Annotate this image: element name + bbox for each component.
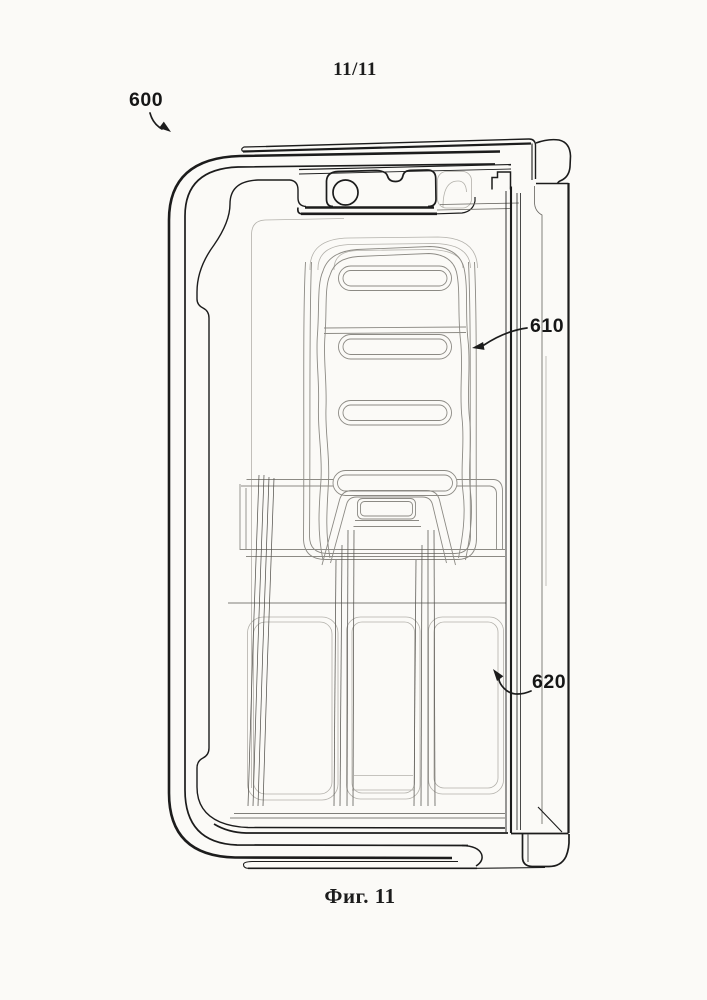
pocket-assembly <box>240 262 505 565</box>
patent-sheet: 11/11 <box>0 0 707 1000</box>
bin-compartments <box>248 617 504 800</box>
patent-line-art <box>0 0 707 1000</box>
vent-slot <box>339 401 452 426</box>
hook-tab <box>536 140 571 184</box>
door-panel <box>506 183 569 867</box>
latch-detail <box>290 170 519 214</box>
ref-arrow-600 <box>150 113 171 132</box>
center-spine-panel <box>317 247 472 561</box>
top-rail <box>242 139 536 180</box>
panel-foot <box>523 807 570 867</box>
figure-caption: Фиг. 11 <box>324 884 395 909</box>
vent-slot <box>339 335 452 360</box>
ref-label-600: 600 <box>129 89 163 112</box>
ref-label-610: 610 <box>530 315 564 338</box>
ref-arrow-610 <box>472 328 527 350</box>
clip-notch <box>492 172 511 190</box>
vent-slot <box>339 266 452 291</box>
ref-label-620: 620 <box>532 671 566 694</box>
